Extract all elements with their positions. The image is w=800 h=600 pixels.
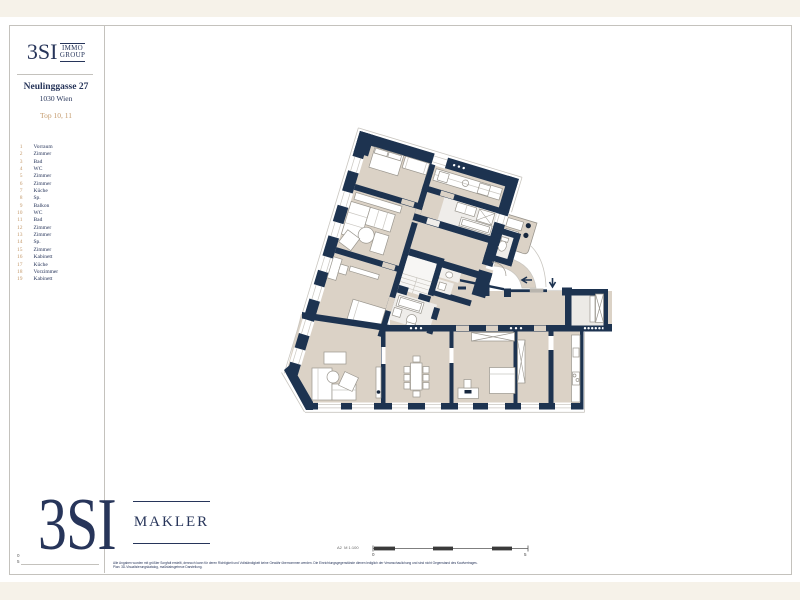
svg-text:5: 5 (524, 552, 527, 557)
svg-text:0: 0 (372, 552, 375, 557)
